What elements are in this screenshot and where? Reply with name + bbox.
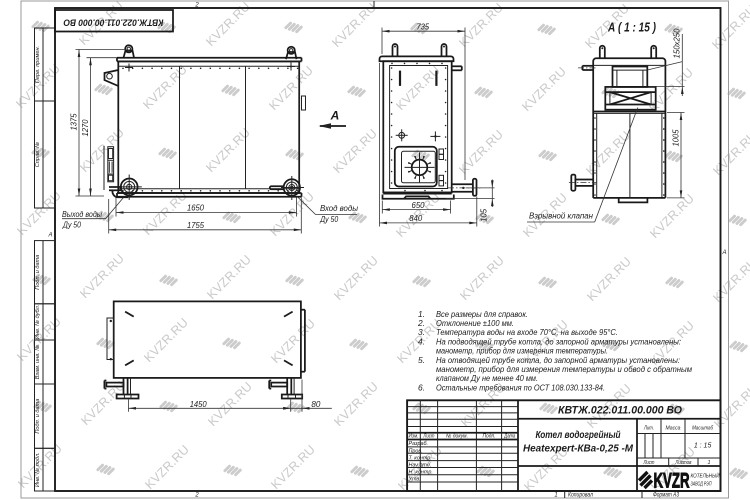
svg-text:KVZR.RU: KVZR.RU — [710, 128, 750, 178]
svg-text:Лист: Лист — [423, 433, 435, 439]
svg-text:№ докум.: № докум. — [446, 433, 468, 439]
svg-text:KVZR.RU: KVZR.RU — [266, 63, 316, 113]
svg-text:Утв.: Утв. — [408, 476, 421, 482]
svg-text:105: 105 — [480, 208, 489, 222]
svg-text:1 : 15: 1 : 15 — [694, 443, 712, 450]
svg-text:840: 840 — [409, 214, 423, 223]
svg-text:KVZR: KVZR — [654, 469, 690, 493]
svg-text:KVZR.RU: KVZR.RU — [519, 64, 569, 114]
svg-text:А: А — [47, 233, 52, 239]
svg-text:1650: 1650 — [187, 204, 205, 213]
svg-text:Ду 50: Ду 50 — [319, 214, 338, 224]
svg-text:KVZR.RU: KVZR.RU — [647, 191, 697, 241]
svg-text:Лист: Лист — [643, 460, 655, 466]
svg-text:КОТЕЛЬНЫЙ: КОТЕЛЬНЫЙ — [691, 472, 720, 480]
svg-text:Формат А3: Формат А3 — [653, 493, 680, 499]
svg-text:KVZR.RU: KVZR.RU — [583, 128, 633, 178]
svg-text:Разраб.: Разраб. — [409, 441, 429, 447]
svg-text:А: А — [330, 108, 340, 122]
svg-text:1270: 1270 — [81, 119, 90, 137]
svg-text:Вход воды: Вход воды — [320, 203, 358, 213]
svg-text:Взам. инв. №: Взам. инв. № — [35, 345, 41, 380]
svg-text:Н. контр.: Н. контр. — [409, 469, 433, 475]
svg-text:Справ. №: Справ. № — [35, 142, 41, 167]
svg-text:KVZR.RU: KVZR.RU — [456, 127, 506, 177]
svg-text:Heatexpert-КВа-0,25 -М: Heatexpert-КВа-0,25 -М — [523, 444, 633, 455]
svg-text:KVZR.RU: KVZR.RU — [140, 188, 190, 238]
svg-text:KVZR.RU: KVZR.RU — [142, 442, 192, 492]
svg-text:Листов: Листов — [675, 460, 692, 466]
svg-text:KVZR.RU: KVZR.RU — [77, 251, 127, 301]
svg-text:KVZR.RU: KVZR.RU — [14, 188, 64, 238]
svg-text:KVZR.RU: KVZR.RU — [331, 379, 381, 429]
svg-text:6.: 6. — [418, 382, 425, 392]
svg-text:Подп. и дата: Подп. и дата — [35, 255, 41, 290]
svg-text:150х250: 150х250 — [672, 28, 681, 59]
svg-text:KVZR.RU: KVZR.RU — [141, 315, 191, 365]
svg-text:А ( 1 : 15 ): А ( 1 : 15 ) — [607, 21, 656, 35]
svg-text:Котел водогрейный: Котел водогрейный — [536, 430, 622, 441]
svg-text:2: 2 — [194, 3, 199, 9]
svg-text:KVZR.RU: KVZR.RU — [0, 251, 1, 301]
svg-text:735: 735 — [417, 22, 430, 31]
svg-text:KVZR.RU: KVZR.RU — [140, 62, 190, 112]
svg-text:Т. контр.: Т. контр. — [409, 455, 432, 461]
svg-text:КВТЖ.022.011.00.000 ВО: КВТЖ.022.011.00.000 ВО — [558, 404, 683, 416]
svg-text:Инв. № подл.: Инв. № подл. — [35, 452, 41, 487]
svg-text:ЗАВОД РЭП: ЗАВОД РЭП — [691, 482, 712, 488]
svg-text:650: 650 — [412, 201, 426, 210]
svg-text:KVZR.RU: KVZR.RU — [331, 253, 381, 303]
svg-text:KVZR.RU: KVZR.RU — [268, 442, 318, 492]
svg-text:Нач.отд.: Нач.отд. — [409, 462, 432, 468]
svg-text:80: 80 — [311, 399, 320, 409]
svg-text:Дата: Дата — [504, 433, 516, 439]
svg-text:KVZR.RU: KVZR.RU — [584, 254, 634, 304]
svg-text:5.: 5. — [418, 355, 425, 365]
svg-text:KVZR.RU: KVZR.RU — [204, 252, 254, 302]
svg-text:Подп. и дата: Подп. и дата — [35, 399, 41, 434]
svg-text:1005: 1005 — [672, 129, 681, 147]
svg-text:Изм.: Изм. — [409, 433, 419, 439]
svg-text:4.: 4. — [418, 336, 425, 346]
svg-text:Пров.: Пров. — [409, 448, 423, 454]
svg-text:KVZR.RU: KVZR.RU — [709, 2, 750, 52]
svg-text:KVZR.RU: KVZR.RU — [205, 379, 255, 429]
svg-text:KVZR.RU: KVZR.RU — [0, 377, 1, 427]
svg-text:KVZR.RU: KVZR.RU — [711, 381, 750, 431]
svg-text:1755: 1755 — [187, 221, 205, 230]
svg-text:KVZR.RU: KVZR.RU — [330, 126, 380, 176]
svg-text:KVZR.RU: KVZR.RU — [457, 253, 507, 303]
svg-text:1: 1 — [554, 493, 557, 499]
svg-text:Подп.: Подп. — [483, 433, 496, 439]
svg-text:Копировал: Копировал — [568, 493, 594, 499]
svg-text:Выход воды: Выход воды — [62, 209, 102, 219]
svg-text:Перв. примен.: Перв. примен. — [35, 46, 41, 83]
svg-text:KVZR.RU: KVZR.RU — [646, 65, 696, 115]
svg-text:1450: 1450 — [190, 399, 207, 409]
svg-text:Масса: Масса — [666, 426, 681, 432]
svg-text:2: 2 — [194, 493, 199, 499]
svg-text:1375: 1375 — [70, 113, 79, 131]
svg-text:Лит.: Лит. — [643, 426, 654, 432]
svg-text:А: А — [721, 250, 726, 256]
svg-text:KVZR.RU: KVZR.RU — [268, 316, 318, 366]
svg-text:Остальные требования по ОСТ 10: Остальные требования по ОСТ 108.030.133-… — [436, 382, 605, 392]
svg-text:Инв. № дубл.: Инв. № дубл. — [35, 305, 41, 339]
svg-text:Взрывной клапан: Взрывной клапан — [529, 211, 593, 221]
svg-text:КВТЖ.022.011.00.000 ВО: КВТЖ.022.011.00.000 ВО — [63, 17, 164, 28]
svg-text:Масштаб: Масштаб — [692, 426, 714, 432]
svg-text:1: 1 — [708, 460, 711, 466]
svg-text:KVZR.RU: KVZR.RU — [710, 255, 750, 305]
svg-text:Ду 50: Ду 50 — [62, 220, 81, 230]
